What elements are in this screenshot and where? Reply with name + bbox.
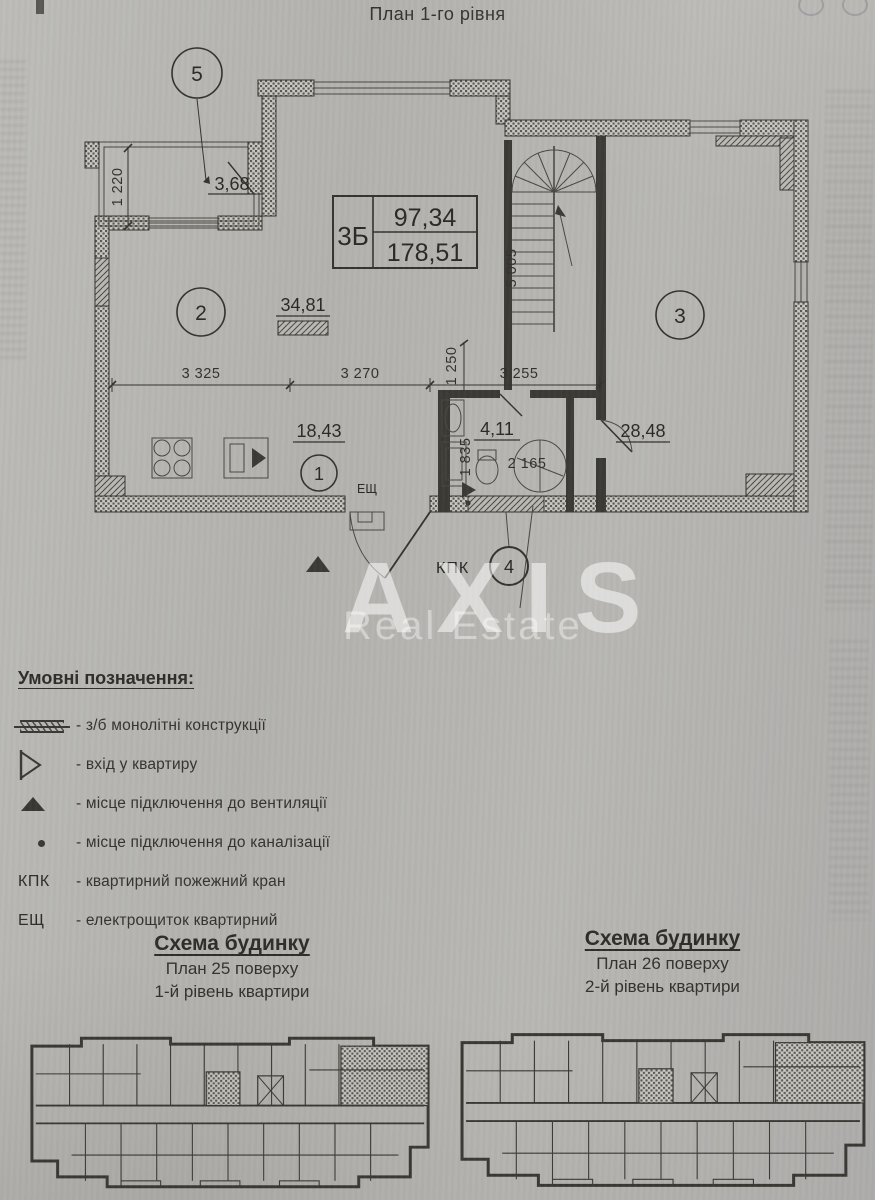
legend-item-ventilation: - місце підключення до вентиляції — [18, 791, 378, 817]
building-scheme-right — [462, 1035, 864, 1186]
room-2-area: 34,81 — [280, 295, 325, 315]
vent-triangle-icon — [18, 794, 76, 814]
room-3-area: 28,48 — [620, 421, 665, 441]
dim-2165: 2 165 — [508, 456, 547, 472]
legend-item-kpk: КПК - квартирний пожежний кран — [18, 869, 378, 895]
room-5-number: 5 — [191, 63, 203, 86]
legend-item-text: - електрощиток квартирний — [76, 912, 278, 930]
unit-info-box: 3Б 97,34 178,51 — [333, 196, 477, 268]
legend-item-concrete: - з/б монолітні конструкції — [18, 713, 378, 739]
scheme-header-left: Схема будинку План 25 поверху 1-й рівень… — [92, 932, 372, 1002]
watermark-realestate: Real Estate — [343, 606, 583, 646]
scanned-floorplan-document: План 1-го рівня — [0, 0, 875, 1200]
kpk-symbol: КПК — [18, 873, 76, 891]
dim-1250: 1 250 — [444, 347, 460, 386]
staircase — [512, 146, 596, 332]
concrete-hatch-icon — [18, 720, 76, 733]
unit-type-label: 3Б — [337, 221, 369, 251]
scheme-title: Схема будинку — [92, 932, 372, 956]
sewage-dot-icon — [18, 840, 76, 847]
legend-item-sewage: - місце підключення до каналізації — [18, 830, 378, 856]
scheme-floor: План 26 поверху — [520, 954, 805, 974]
legend-item-text: - місце підключення до каналізації — [76, 834, 330, 852]
legend-item-text: - з/б монолітні конструкції — [76, 717, 266, 735]
scheme-title: Схема будинку — [520, 927, 805, 951]
dim-3270: 3 270 — [341, 366, 380, 382]
vent-connection-icon — [306, 556, 330, 572]
dim-1220: 1 220 — [110, 168, 126, 207]
scan-artifact-mark — [36, 0, 44, 14]
building-scheme-left — [32, 1038, 428, 1187]
scheme-floor: План 25 поверху — [92, 959, 372, 979]
room-5-area: 3,68 — [214, 174, 249, 194]
legend-item-text: - місце підключення до вентиляції — [76, 795, 327, 813]
vent-connection-icon — [252, 448, 266, 468]
unit-area-lower: 178,51 — [387, 239, 463, 267]
room-4-area: 4,11 — [480, 419, 514, 439]
legend-title: Умовні позначення: — [18, 668, 378, 689]
legend-item-text: - квартирний пожежний кран — [76, 873, 286, 891]
room-1-number: 1 — [314, 464, 324, 484]
dim-3255: 3 255 — [500, 366, 539, 382]
legend-item-text: - вхід у квартиру — [76, 756, 197, 774]
kitchen-fixtures — [152, 438, 384, 530]
dim-5005: 5 005 — [504, 249, 520, 288]
sewage-connection-icon — [465, 500, 470, 505]
dim-1835: 1 835 — [458, 438, 474, 477]
room-2-number: 2 — [195, 302, 207, 325]
scheme-level: 1-й рівень квартири — [92, 982, 372, 1002]
legend-item-entrance: - вхід у квартиру — [18, 752, 378, 778]
esh-symbol: ЕЩ — [18, 912, 76, 930]
scheme-header-right: Схема будинку План 26 поверху 2-й рівень… — [520, 927, 805, 997]
legend: Умовні позначення: - з/б монолітні конст… — [18, 668, 378, 947]
room-3-number: 3 — [674, 305, 686, 328]
scheme-level: 2-й рівень квартири — [520, 977, 805, 997]
entrance-triangle-icon — [18, 748, 76, 782]
room-1-area: 18,43 — [296, 421, 341, 441]
esh-mark: ЕЩ — [357, 482, 377, 496]
legend-item-esh: ЕЩ - електрощиток квартирний — [18, 908, 378, 934]
dim-3325: 3 325 — [182, 366, 221, 382]
unit-area-upper: 97,34 — [394, 204, 457, 232]
